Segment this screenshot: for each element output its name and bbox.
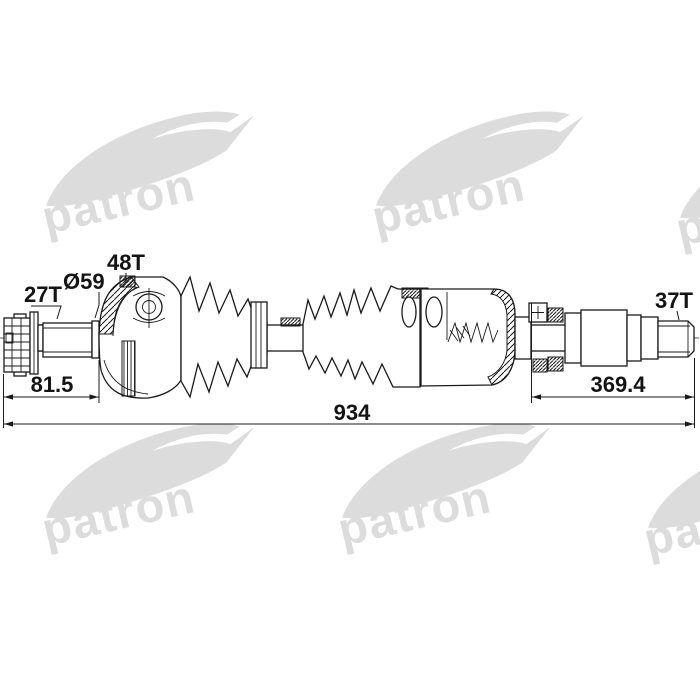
dimension-value: 81.5 xyxy=(31,372,74,397)
threaded-stub-end xyxy=(4,312,43,376)
spline-teeth-band xyxy=(122,341,135,396)
patron-watermark: patron xyxy=(27,100,272,244)
patron-watermark: patron xyxy=(661,112,700,256)
label-outer-spline-teeth: 27T xyxy=(24,282,62,307)
output-step xyxy=(515,317,531,359)
label-inner-spline-teeth: 37T xyxy=(655,288,693,313)
boot-small-collar xyxy=(251,302,267,368)
patron-watermark: patron xyxy=(27,412,272,556)
label-boot-diameter: Ø59 xyxy=(63,269,105,294)
shaft-clamp-band xyxy=(281,318,300,326)
catalog-technical-image: patron patron patron patron patron patro… xyxy=(0,0,700,700)
tripod-roller xyxy=(426,297,442,327)
tripod-roller xyxy=(402,297,416,327)
patron-logo-text: patron xyxy=(671,169,700,256)
dimension-934: 934 xyxy=(4,400,695,427)
inner-cv-joint xyxy=(402,289,547,386)
inner-spline-end xyxy=(658,321,694,357)
dimension-value: 934 xyxy=(334,400,371,425)
axle-technical-drawing: patron patron patron patron patron patro… xyxy=(0,0,700,700)
snap-ring xyxy=(548,308,563,322)
abs-tone-ring xyxy=(120,276,135,287)
snap-ring xyxy=(548,357,563,371)
stepped-shaft-right xyxy=(548,308,658,371)
outer-spline-section xyxy=(43,321,99,358)
leader-line-d59 xyxy=(95,292,99,318)
patron-watermark: patron xyxy=(629,422,700,566)
outer-cv-joint xyxy=(99,276,181,398)
patron-watermark: patron xyxy=(357,100,602,244)
label-abs-ring-teeth: 48T xyxy=(107,250,145,275)
dimension-369-4: 369.4 xyxy=(532,372,695,400)
dimension-value: 369.4 xyxy=(590,372,646,397)
patron-watermark: patron xyxy=(323,412,568,556)
